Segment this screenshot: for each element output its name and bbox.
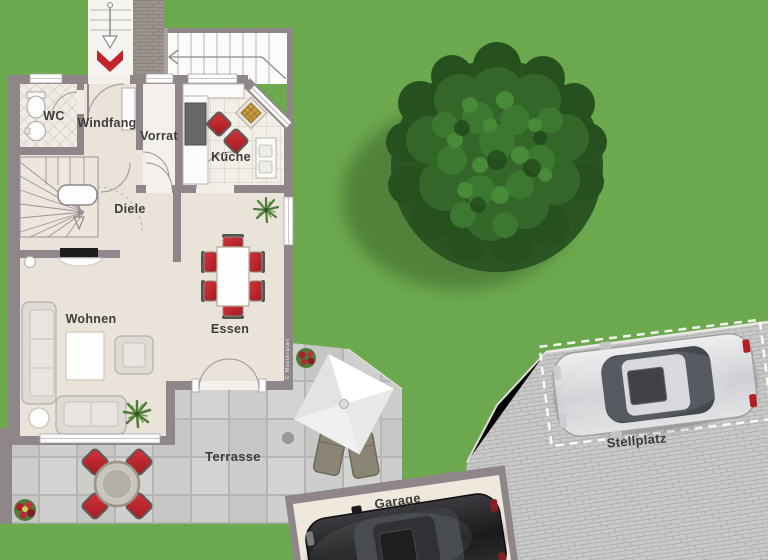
floor-plan-svg: Stellplatz Terrasse	[0, 0, 768, 560]
entrance-walk	[88, 0, 164, 75]
wc-label: WC	[43, 109, 64, 123]
brick-path	[133, 0, 164, 75]
drain-cover-icon	[282, 432, 294, 444]
column-icon	[25, 257, 36, 268]
wohnen-label: Wohnen	[66, 312, 117, 326]
vorrat-label: Vorrat	[140, 129, 178, 143]
essen-label: Essen	[211, 322, 249, 336]
dining-chair-icon	[204, 281, 217, 301]
coffee-table-icon	[66, 332, 104, 380]
windfang-label: Windfang	[77, 116, 136, 130]
stove-icon	[185, 103, 206, 145]
dining-chair-icon	[204, 252, 217, 272]
flower-pot-icon	[14, 499, 36, 521]
wohnen-window	[40, 434, 160, 443]
floor-plan-canvas: Stellplatz Terrasse	[0, 0, 768, 560]
kueche-label: Küche	[211, 150, 251, 164]
diele-label: Diele	[114, 202, 145, 216]
tv-icon	[60, 248, 98, 257]
essen-window	[284, 197, 293, 245]
house: WC Windfang Vorrat Küche Diele Wohnen Es…	[8, 28, 293, 445]
dining-table-icon	[217, 247, 249, 306]
watermark: © Musterplan	[284, 338, 291, 380]
vorrat-window	[146, 74, 173, 83]
flower-pot-icon	[296, 348, 316, 368]
kueche-window	[188, 74, 237, 83]
side-table-icon	[29, 408, 49, 428]
dining-chair-icon	[249, 281, 262, 301]
dining-chair-icon	[249, 252, 262, 272]
wc-window	[30, 74, 62, 83]
terrasse-label: Terrasse	[205, 449, 261, 464]
